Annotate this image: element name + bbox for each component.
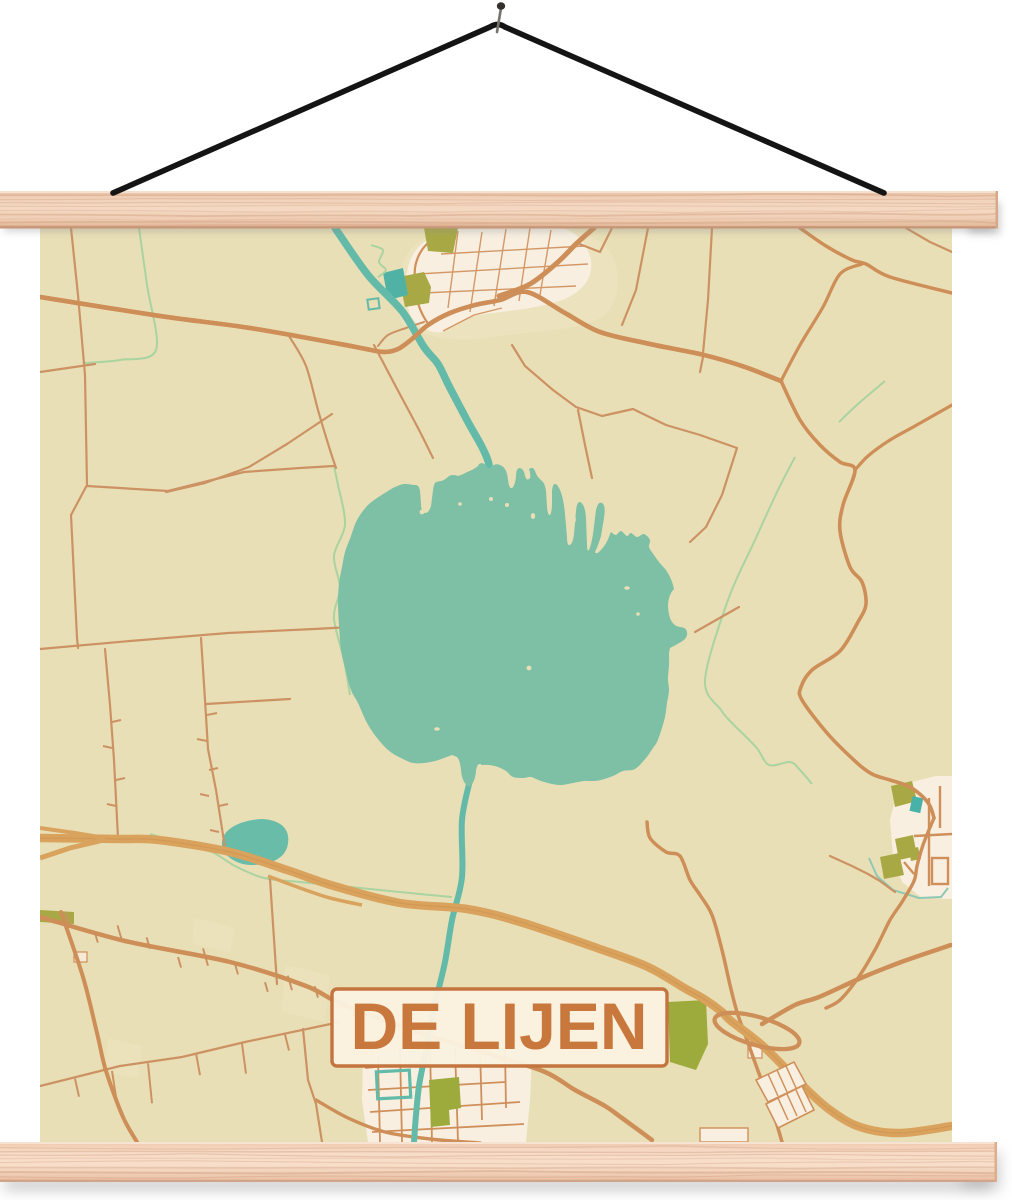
svg-text:DE LIJEN: DE LIJEN <box>350 989 647 1063</box>
